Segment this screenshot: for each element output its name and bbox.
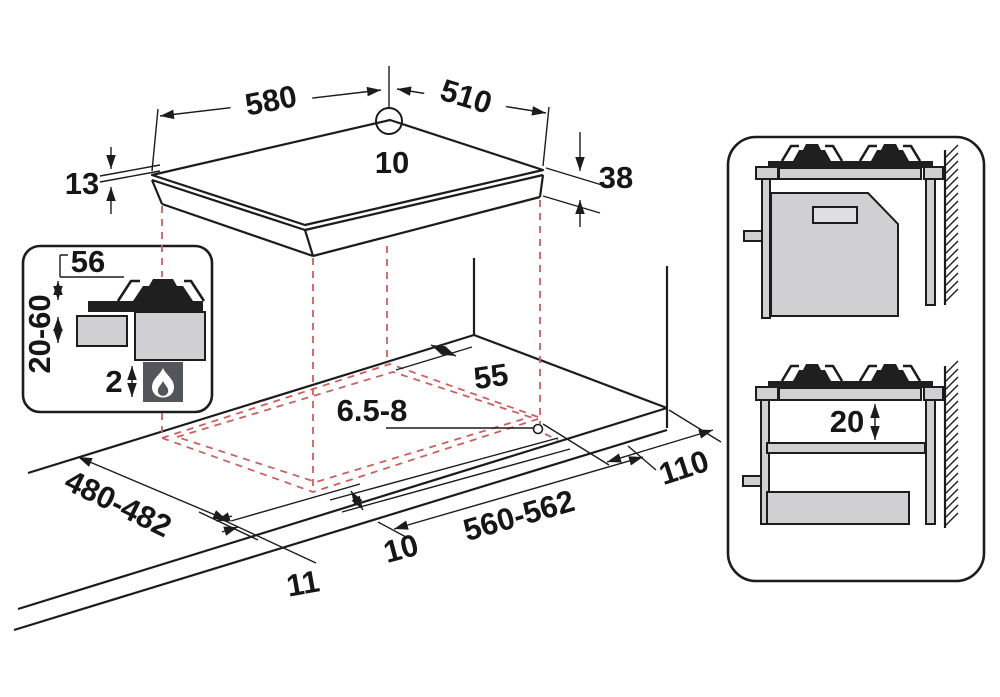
- inset-cabinet-box: [77, 316, 127, 346]
- dim-bottom-gap: 2: [105, 364, 122, 399]
- inset-hob-surface: [88, 301, 203, 312]
- hob-glass-top: [152, 120, 543, 225]
- dim-glass-thickness: 13: [65, 166, 99, 201]
- side-views-panel: 20: [728, 137, 984, 581]
- installation-diagram: 580 510 10 13 38 55 6.5-8 110: [0, 0, 1000, 697]
- dim-rear-clearance: 55: [471, 357, 510, 396]
- side-view-oven-install: [744, 144, 958, 318]
- shelf: [767, 443, 925, 453]
- dim-body-height: 38: [599, 160, 633, 195]
- burner-detail-inset: 56 20-60 2: [22, 206, 212, 437]
- cabinet-side-right: [926, 400, 935, 524]
- dim-clearance-range: 20-60: [22, 294, 57, 373]
- dim-hob-depth: 510: [436, 72, 496, 121]
- dim-hole-diameter: 6.5-8: [337, 393, 408, 428]
- dim-front-offset: 10: [380, 527, 422, 570]
- hob-section: [768, 161, 933, 168]
- worktop-section: [779, 388, 921, 400]
- dim-shelf-clearance: 20: [830, 404, 864, 439]
- dim-hob-width: 580: [242, 78, 299, 122]
- dim-cutout-depth: 480-482: [59, 463, 177, 544]
- inset-hob-body: [135, 312, 205, 360]
- cabinet-side-left: [762, 179, 770, 318]
- side-view-shelf-install: 20: [743, 361, 958, 528]
- oven-vent: [813, 207, 857, 223]
- inset-burner-cap: [149, 279, 177, 286]
- hob-top-view: [152, 108, 543, 256]
- dim-rear-offset: 10: [375, 145, 409, 180]
- drawer: [767, 492, 909, 524]
- inset-burner-base: [133, 286, 193, 301]
- dim-burner-height: 56: [71, 244, 105, 279]
- diagram-canvas: 580 510 10 13 38 55 6.5-8 110: [0, 0, 1000, 697]
- cabinet-side-right: [926, 179, 935, 305]
- worktop-section: [779, 168, 921, 179]
- fixing-hole: [534, 425, 543, 434]
- dim-side-clearance: 110: [655, 443, 713, 492]
- hob-section: [768, 381, 933, 388]
- dim-side-offset: 11: [284, 563, 322, 603]
